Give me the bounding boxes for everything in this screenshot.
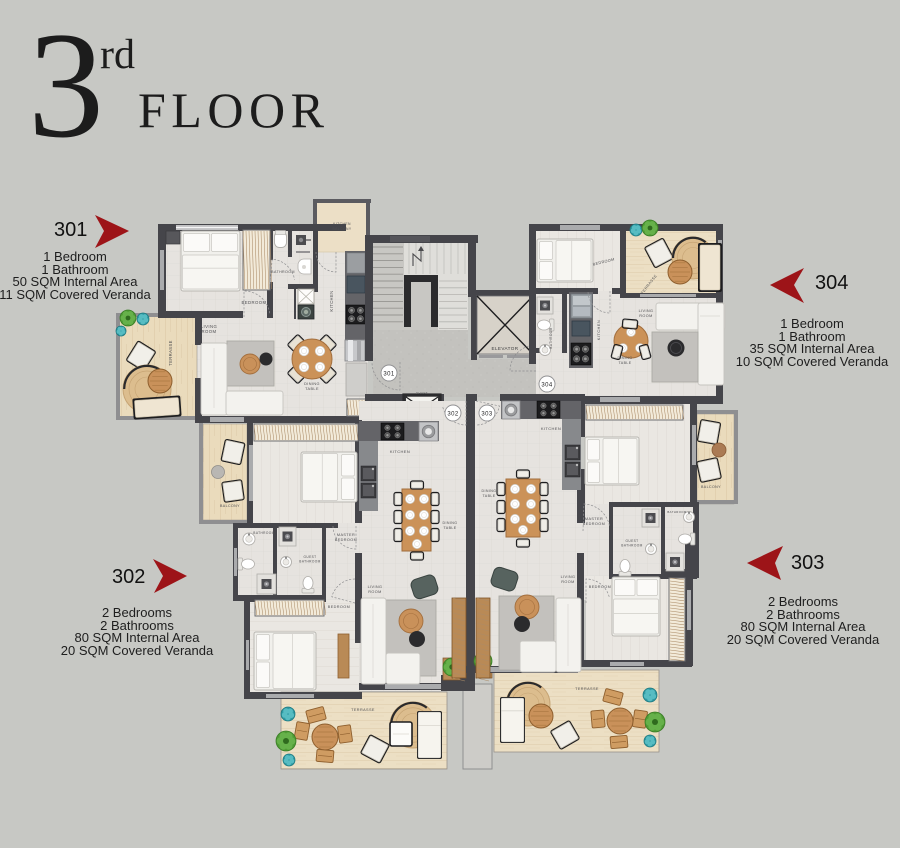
svg-text:TERRASSE: TERRASSE bbox=[575, 687, 599, 691]
svg-text:TABLE: TABLE bbox=[618, 361, 631, 365]
svg-text:LIVING: LIVING bbox=[368, 585, 383, 589]
svg-text:DINING: DINING bbox=[304, 382, 320, 386]
svg-text:DINING: DINING bbox=[443, 521, 458, 525]
svg-text:BATHROOM: BATHROOM bbox=[253, 531, 274, 535]
svg-text:BEDROOM: BEDROOM bbox=[589, 585, 611, 589]
svg-text:BALCONY: BALCONY bbox=[332, 227, 351, 231]
svg-text:GUEST: GUEST bbox=[626, 539, 639, 543]
svg-text:304: 304 bbox=[541, 382, 552, 388]
svg-text:BEDROOM: BEDROOM bbox=[241, 300, 266, 305]
svg-text:BALCONY: BALCONY bbox=[701, 485, 721, 489]
svg-text:ROOM: ROOM bbox=[368, 590, 381, 594]
svg-text:KITCHEN: KITCHEN bbox=[596, 320, 601, 340]
svg-text:MASTER: MASTER bbox=[337, 533, 355, 537]
svg-text:ELEVATOR: ELEVATOR bbox=[492, 346, 519, 351]
svg-text:BATHROOM: BATHROOM bbox=[271, 270, 295, 274]
svg-text:SHAFT: SHAFT bbox=[416, 391, 428, 395]
svg-text:302: 302 bbox=[447, 411, 458, 417]
svg-text:BATHROOM: BATHROOM bbox=[299, 560, 320, 564]
svg-text:BEDROOM: BEDROOM bbox=[583, 522, 605, 526]
svg-text:LIVING: LIVING bbox=[639, 309, 654, 313]
svg-text:ROOM: ROOM bbox=[639, 314, 652, 318]
svg-text:TABLE: TABLE bbox=[482, 494, 495, 498]
svg-text:BALCONY: BALCONY bbox=[220, 504, 240, 508]
svg-text:LIVING: LIVING bbox=[561, 575, 576, 579]
svg-text:KITCHEN: KITCHEN bbox=[333, 222, 351, 226]
svg-text:KITCHEN: KITCHEN bbox=[390, 449, 410, 454]
svg-text:301: 301 bbox=[383, 371, 394, 377]
svg-text:MASTER: MASTER bbox=[585, 517, 603, 521]
svg-text:BATHROOM: BATHROOM bbox=[667, 510, 686, 514]
svg-text:TABLE: TABLE bbox=[443, 526, 456, 530]
svg-text:BATHROOM: BATHROOM bbox=[621, 544, 642, 548]
svg-text:TERRASSE: TERRASSE bbox=[351, 708, 375, 712]
svg-text:ROOM: ROOM bbox=[202, 329, 217, 334]
svg-text:KITCHEN: KITCHEN bbox=[329, 290, 334, 311]
svg-text:DINING: DINING bbox=[482, 489, 497, 493]
svg-text:GUEST: GUEST bbox=[304, 555, 317, 559]
svg-text:ROOM: ROOM bbox=[561, 580, 574, 584]
svg-text:TERRASSE: TERRASSE bbox=[168, 340, 173, 366]
svg-text:BEDROOM: BEDROOM bbox=[328, 605, 350, 609]
svg-text:303: 303 bbox=[481, 411, 492, 417]
svg-text:DINING: DINING bbox=[618, 356, 633, 360]
svg-text:KITCHEN: KITCHEN bbox=[541, 426, 561, 431]
svg-text:BATHROOM: BATHROOM bbox=[549, 327, 553, 348]
svg-text:TABLE: TABLE bbox=[305, 387, 319, 391]
